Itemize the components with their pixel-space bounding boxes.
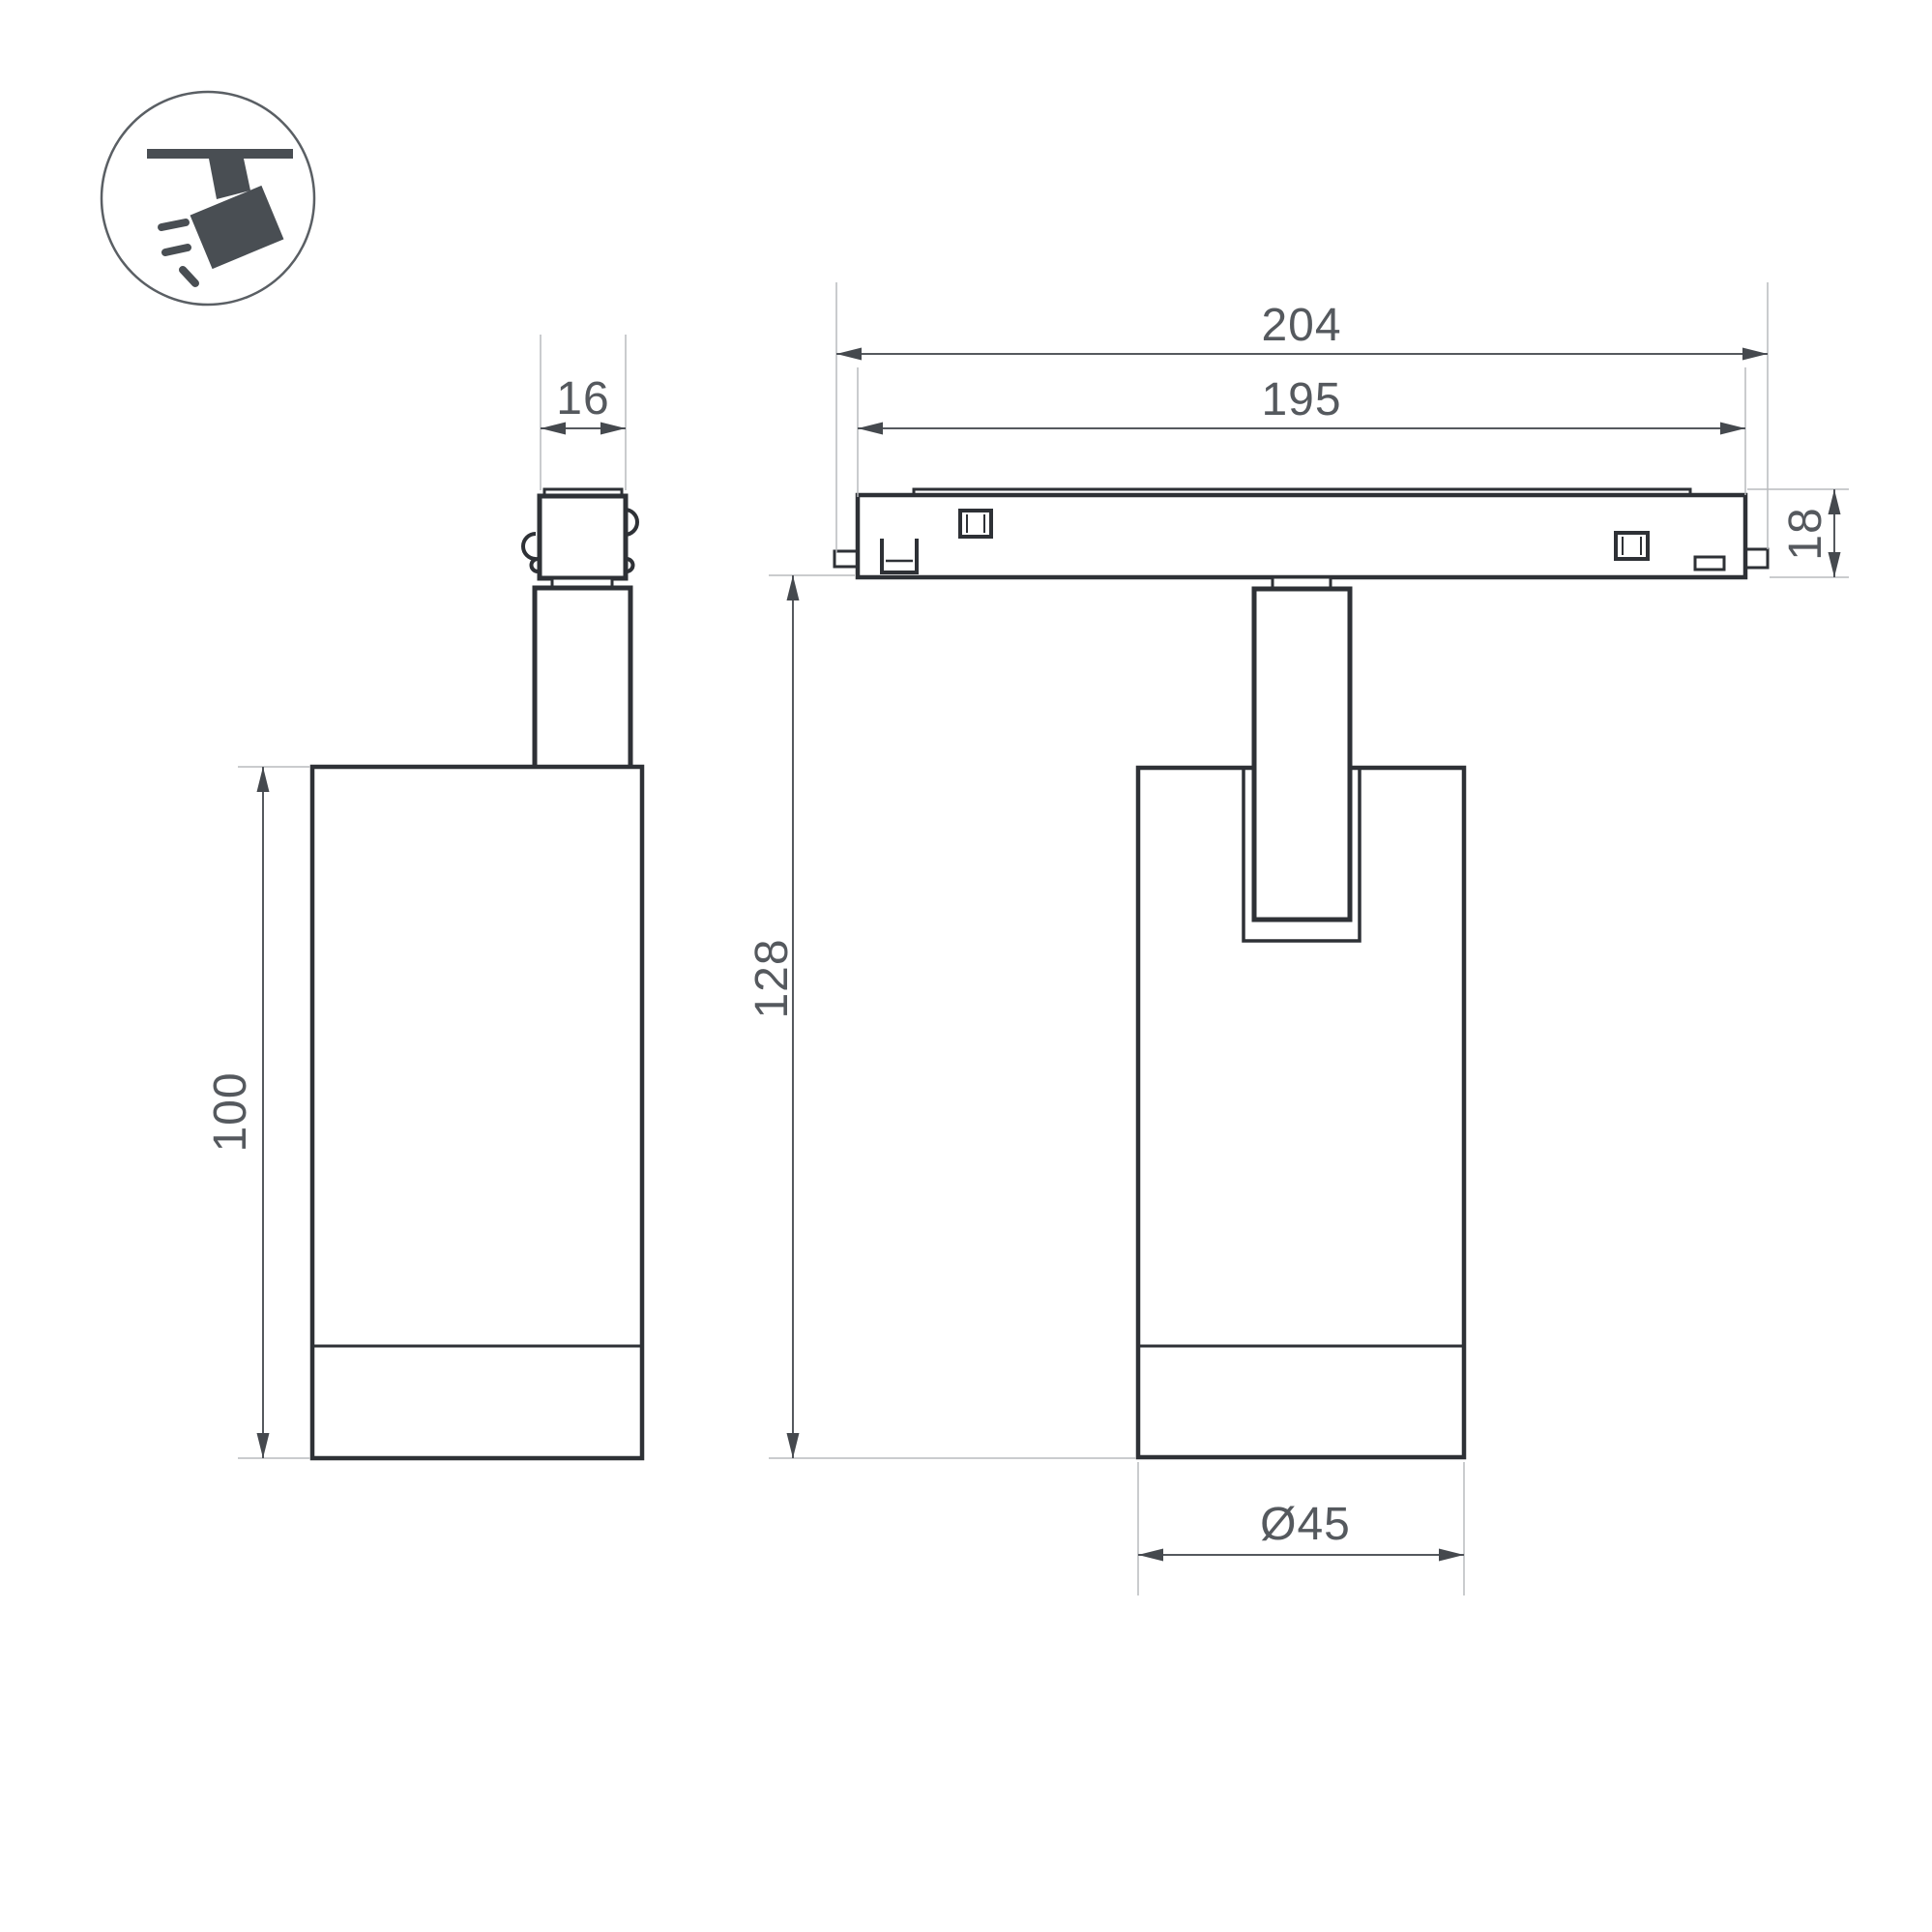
dim-label-body-height: 100 (205, 1071, 256, 1152)
side-ear-left (523, 534, 536, 559)
dim-label-track-total-length: 204 (1261, 300, 1341, 351)
icon-light-rays (161, 222, 195, 283)
side-track-adapter (540, 496, 626, 578)
dimension-drawing: 16 204 195 18 100 128 Ø45 (0, 0, 1932, 1932)
icon-ceiling-track (147, 149, 293, 159)
icon-lamp-head (190, 186, 284, 269)
front-end-tab-right (1745, 549, 1768, 568)
dim-label-track-inner-length: 195 (1261, 374, 1341, 425)
dim-label-body-diameter: Ø45 (1260, 1499, 1351, 1550)
side-ear-left-bottom (532, 559, 538, 571)
side-arm (535, 588, 630, 768)
dim-label-adapter-width: 16 (556, 373, 609, 424)
front-arm (1254, 589, 1350, 920)
icon-circle (102, 92, 314, 305)
front-view (834, 489, 1768, 1457)
side-view (312, 489, 642, 1458)
dim-label-track-height: 18 (1780, 507, 1831, 560)
technical-drawing-page: 16 204 195 18 100 128 Ø45 (0, 0, 1932, 1932)
dim-label-total-height: 128 (746, 938, 798, 1018)
front-end-tab-left (834, 551, 858, 567)
side-lamp-body (312, 767, 642, 1458)
track-spotlight-icon (102, 92, 314, 305)
